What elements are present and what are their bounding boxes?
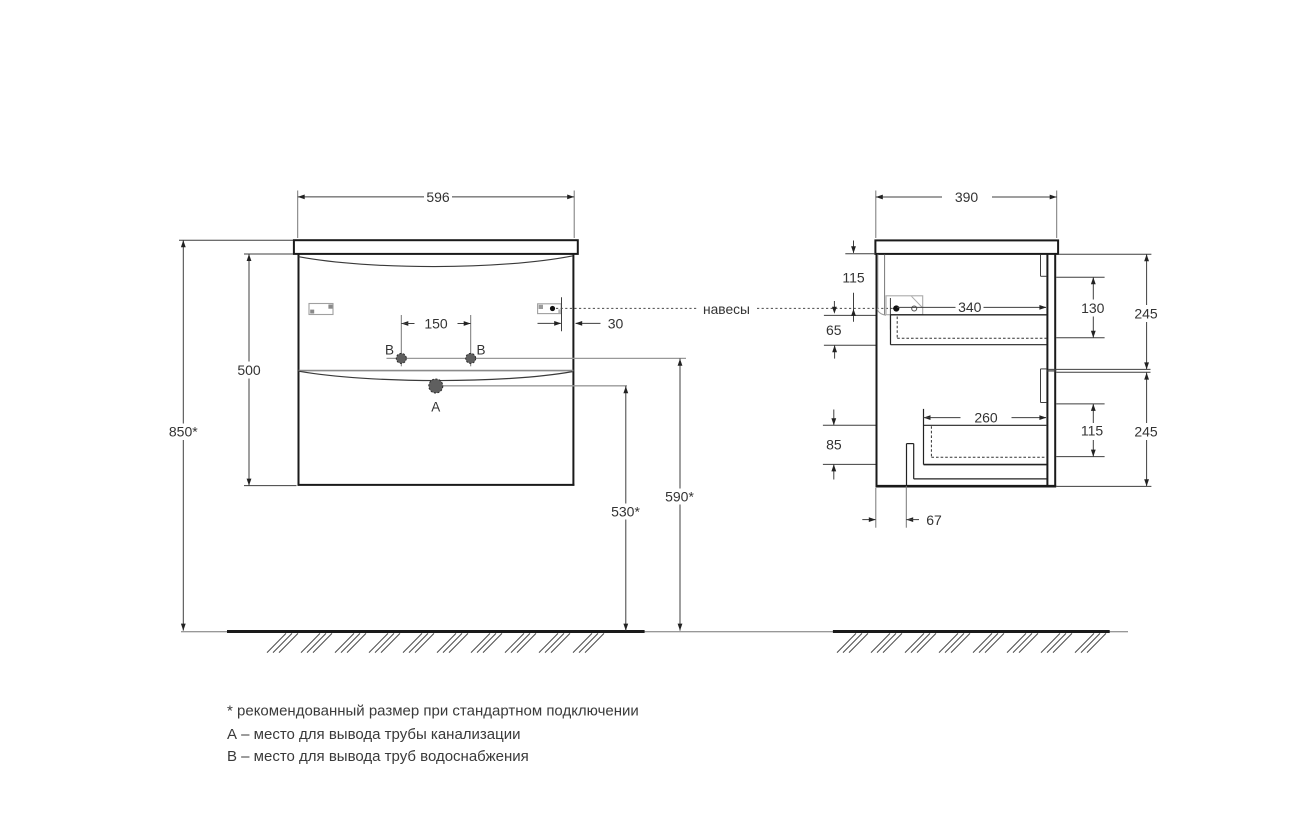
svg-text:260: 260 (974, 410, 998, 426)
svg-text:85: 85 (826, 437, 842, 453)
svg-text:245: 245 (1134, 423, 1158, 439)
svg-text:530*: 530* (611, 504, 640, 520)
svg-text:590*: 590* (665, 489, 694, 505)
svg-text:В – место для вывода труб водо: В – место для вывода труб водоснабжения (227, 748, 529, 765)
svg-text:B: B (476, 342, 485, 357)
svg-text:навесы: навесы (703, 302, 750, 317)
svg-text:67: 67 (926, 512, 942, 528)
svg-text:115: 115 (842, 270, 865, 286)
svg-text:500: 500 (237, 362, 261, 378)
svg-text:596: 596 (426, 189, 450, 205)
svg-text:245: 245 (1134, 305, 1158, 321)
svg-text:30: 30 (608, 316, 624, 332)
svg-text:130: 130 (1081, 300, 1105, 316)
svg-text:115: 115 (1081, 423, 1104, 439)
svg-text:А – место для вывода трубы кан: А – место для вывода трубы канализации (227, 726, 520, 743)
svg-text:* рекомендованный размер при с: * рекомендованный размер при стандартном… (227, 702, 639, 719)
svg-text:B: B (385, 342, 394, 357)
svg-text:850*: 850* (169, 424, 198, 440)
svg-text:390: 390 (955, 189, 979, 205)
svg-text:A: A (431, 399, 440, 414)
svg-text:340: 340 (958, 299, 982, 315)
svg-text:150: 150 (424, 316, 448, 332)
svg-text:65: 65 (826, 322, 842, 338)
